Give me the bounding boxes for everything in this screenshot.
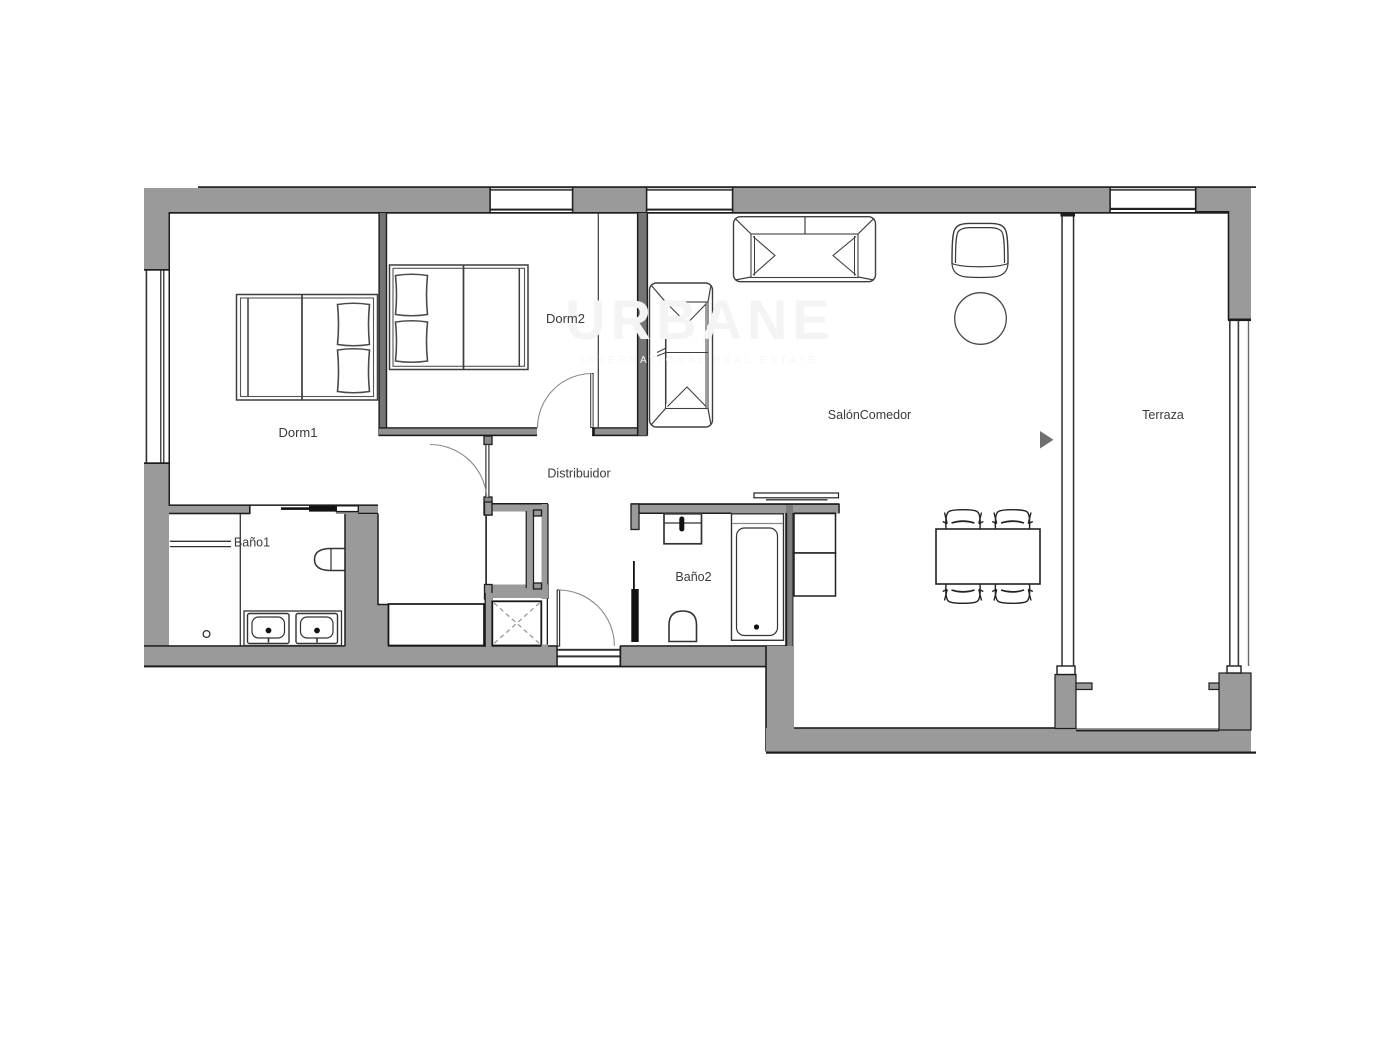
svg-text:Dorm1: Dorm1 [278,425,317,440]
svg-text:Dorm2: Dorm2 [546,311,585,326]
svg-text:SalónComedor: SalónComedor [828,408,911,422]
svg-text:INTERNATIONAL REAL ESTATE: INTERNATIONAL REAL ESTATE [581,355,819,366]
svg-text:Terraza: Terraza [1142,408,1184,422]
svg-text:Baño1: Baño1 [234,536,270,550]
svg-text:Baño2: Baño2 [675,570,711,584]
svg-text:Distribuidor: Distribuidor [547,467,610,481]
svg-text:URBANE: URBANE [565,288,835,351]
